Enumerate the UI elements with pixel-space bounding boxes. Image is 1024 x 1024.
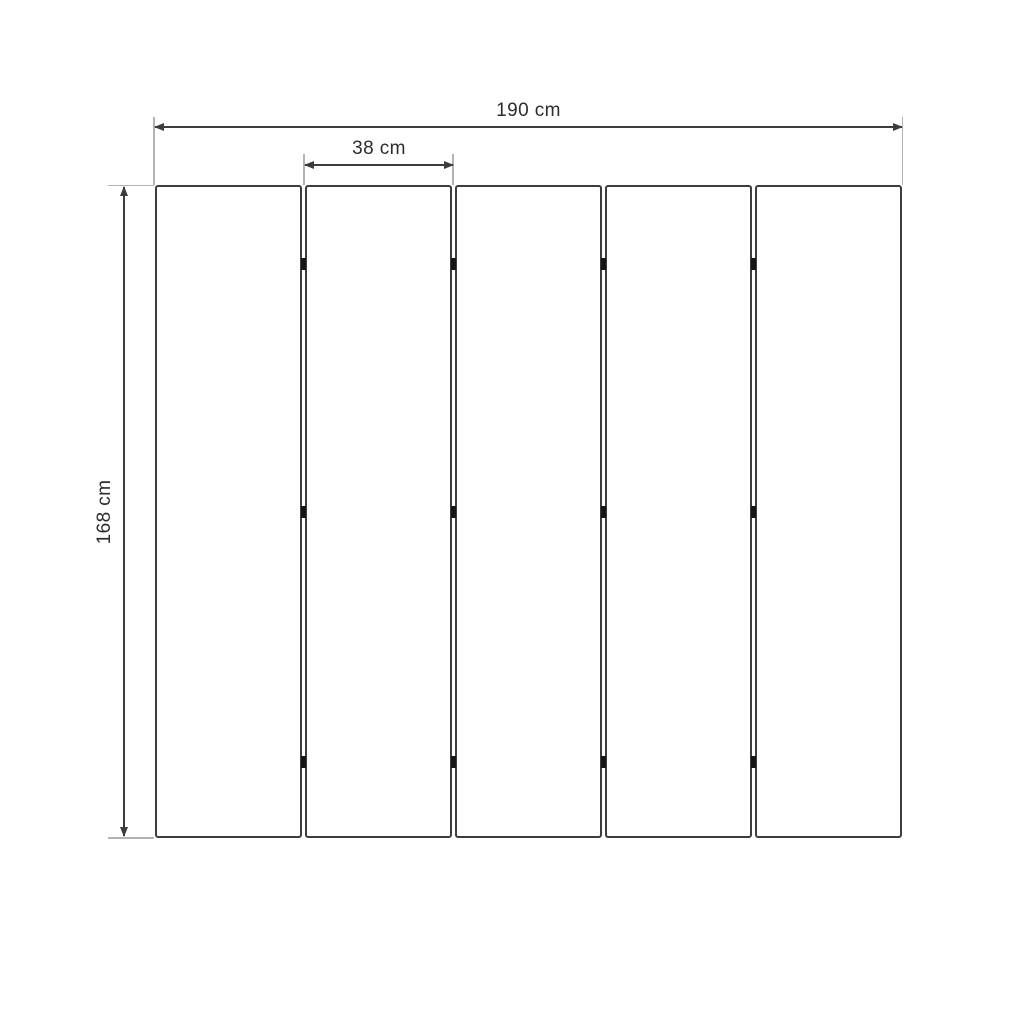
extension-line-height-top <box>108 185 154 187</box>
arrowhead-left-icon <box>154 123 164 131</box>
hinge-mark <box>601 506 606 518</box>
dimension-height: 168 cm <box>123 187 125 836</box>
panel-5 <box>755 185 902 838</box>
hinge-mark <box>301 258 306 270</box>
arrowhead-up-icon <box>120 186 128 196</box>
extension-line-panel-width-right <box>452 154 454 185</box>
hinge-mark <box>451 506 456 518</box>
hinge-mark <box>451 258 456 270</box>
hinge-mark <box>601 258 606 270</box>
arrowhead-right-icon <box>444 161 454 169</box>
hinge-mark <box>451 756 456 768</box>
panel-2 <box>305 185 452 838</box>
panel-4 <box>605 185 752 838</box>
diagram-canvas: 190 cm 38 cm 168 cm <box>0 0 1024 1024</box>
hinge-mark <box>301 756 306 768</box>
dimension-total-width: 190 cm <box>155 126 902 128</box>
arrowhead-left-icon <box>304 161 314 169</box>
hinge-mark <box>751 258 756 270</box>
hinge-mark <box>301 506 306 518</box>
hinge-mark <box>751 756 756 768</box>
panel-width-label: 38 cm <box>352 138 406 160</box>
height-label: 168 cm <box>94 479 116 544</box>
panel-3 <box>455 185 602 838</box>
dimension-panel-width: 38 cm <box>305 164 453 166</box>
extension-line-height-bottom <box>108 837 154 839</box>
hinge-mark <box>601 756 606 768</box>
total-width-label: 190 cm <box>496 100 561 122</box>
panel-1 <box>155 185 302 838</box>
hinge-mark <box>751 506 756 518</box>
arrowhead-down-icon <box>120 827 128 837</box>
arrowhead-right-icon <box>893 123 903 131</box>
extension-line-panel-width-left <box>303 154 305 185</box>
